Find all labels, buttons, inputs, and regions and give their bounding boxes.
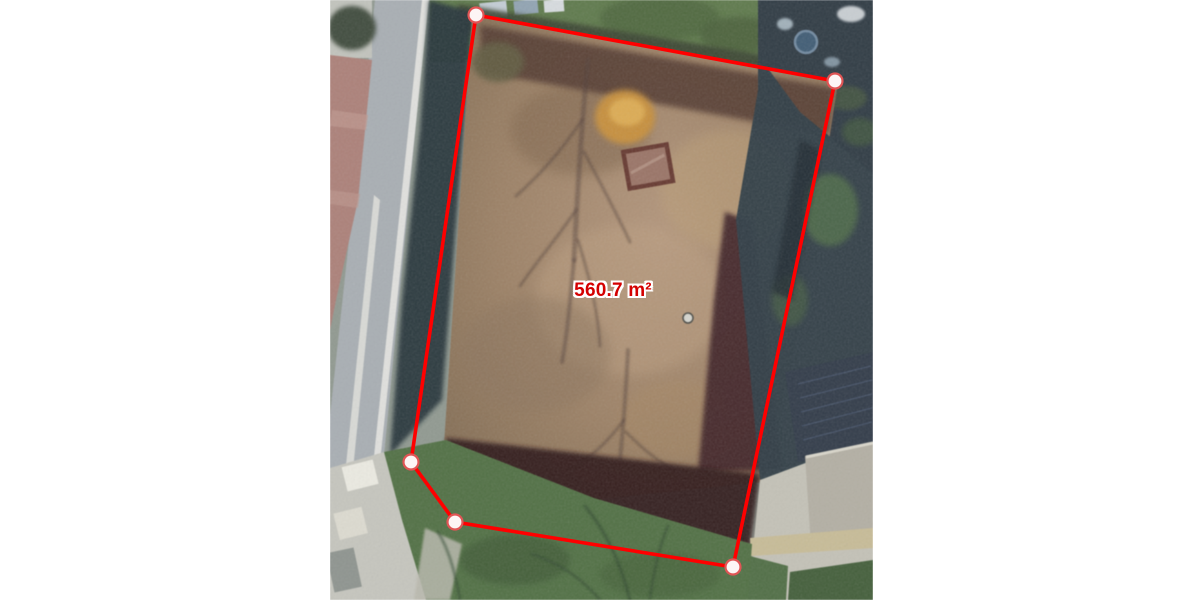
map-canvas[interactable]: 560.7 m²	[0, 0, 1200, 600]
vertex-marker[interactable]	[404, 455, 419, 470]
vertex-marker[interactable]	[448, 515, 463, 530]
area-measurement-label: 560.7 m²	[574, 280, 652, 302]
vertex-marker[interactable]	[726, 560, 741, 575]
vertex-marker[interactable]	[828, 74, 843, 89]
vertex-marker[interactable]	[469, 8, 484, 23]
